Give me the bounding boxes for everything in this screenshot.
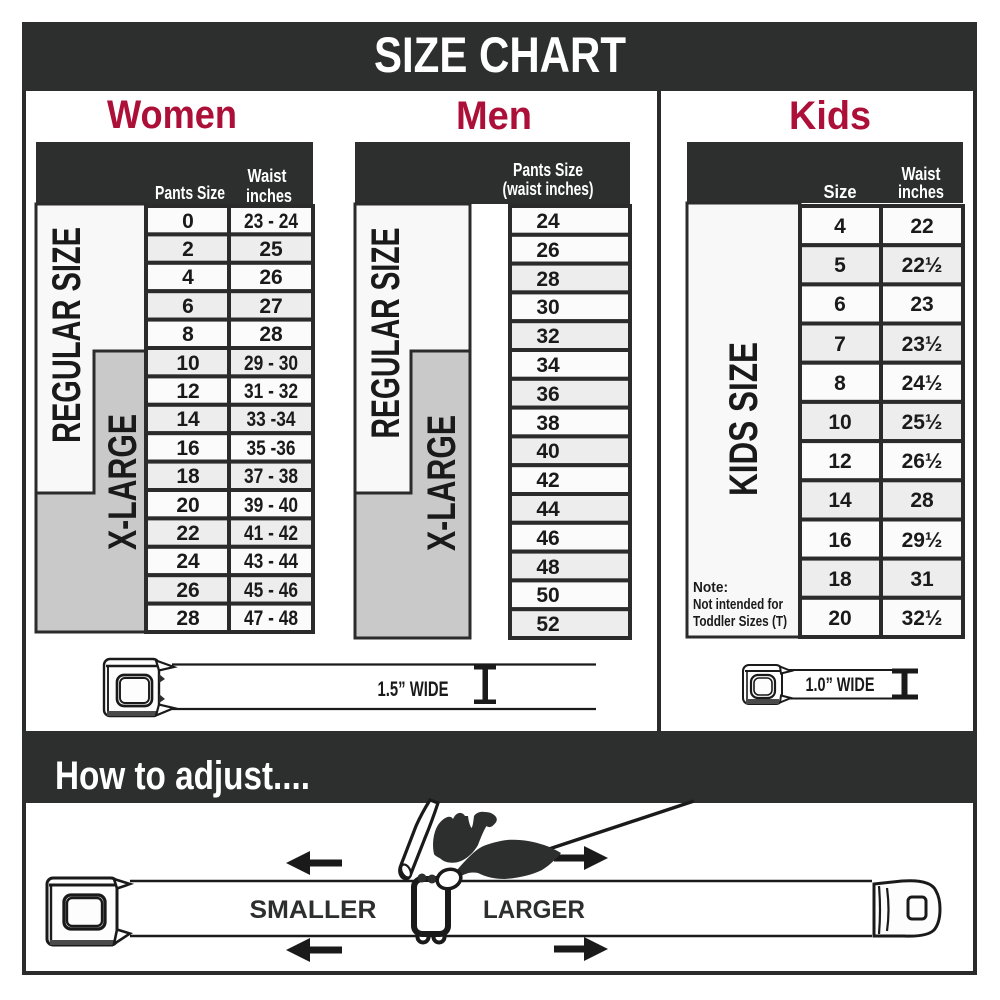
svg-text:SIZE CHART: SIZE CHART [374, 27, 626, 83]
svg-text:10: 10 [828, 411, 851, 434]
svg-text:22½: 22½ [902, 254, 943, 277]
svg-text:(waist inches): (waist inches) [503, 179, 594, 199]
svg-text:1.0” WIDE: 1.0” WIDE [806, 675, 875, 696]
svg-text:47 - 48: 47 - 48 [244, 607, 298, 630]
svg-text:43 - 44: 43 - 44 [244, 550, 298, 573]
svg-text:52: 52 [536, 613, 559, 636]
svg-text:X-LARGE: X-LARGE [420, 415, 464, 551]
svg-text:14: 14 [828, 489, 852, 512]
svg-text:26: 26 [176, 579, 199, 602]
svg-text:REGULAR SIZE: REGULAR SIZE [45, 227, 89, 443]
svg-text:4: 4 [834, 215, 846, 238]
svg-text:Waist: Waist [902, 164, 941, 184]
svg-text:23: 23 [910, 293, 933, 316]
svg-text:39 - 40: 39 - 40 [244, 494, 298, 517]
svg-text:inches: inches [898, 182, 944, 202]
svg-text:X-LARGE: X-LARGE [101, 414, 145, 550]
svg-text:Not intended for: Not intended for [693, 596, 783, 613]
svg-text:26: 26 [536, 239, 559, 262]
svg-text:0: 0 [182, 210, 194, 233]
svg-text:LARGER: LARGER [483, 896, 585, 924]
svg-text:16: 16 [828, 529, 851, 552]
svg-text:36: 36 [536, 383, 559, 406]
svg-text:8: 8 [182, 323, 194, 346]
svg-text:31: 31 [910, 568, 934, 591]
svg-text:Waist: Waist [248, 166, 287, 186]
svg-text:32½: 32½ [902, 607, 943, 630]
svg-text:5: 5 [834, 254, 846, 277]
svg-text:50: 50 [536, 584, 559, 607]
svg-text:24½: 24½ [902, 372, 943, 395]
svg-text:20: 20 [828, 607, 851, 630]
svg-text:34: 34 [536, 354, 560, 377]
svg-text:4: 4 [182, 266, 194, 289]
svg-text:KIDS SIZE: KIDS SIZE [722, 342, 766, 496]
svg-text:8: 8 [834, 372, 846, 395]
svg-text:Toddler Sizes (T): Toddler Sizes (T) [693, 613, 787, 630]
svg-text:16: 16 [176, 437, 199, 460]
svg-text:44: 44 [536, 498, 560, 521]
svg-text:30: 30 [536, 296, 559, 319]
svg-text:Women: Women [107, 93, 237, 137]
svg-text:1.5” WIDE: 1.5” WIDE [378, 678, 449, 701]
svg-text:25: 25 [259, 238, 283, 261]
svg-text:12: 12 [828, 450, 851, 473]
svg-text:inches: inches [246, 186, 292, 206]
svg-text:18: 18 [176, 465, 200, 488]
svg-text:18: 18 [828, 568, 852, 591]
svg-text:42: 42 [536, 469, 559, 492]
svg-text:Kids: Kids [789, 94, 871, 138]
svg-text:Size: Size [824, 182, 857, 202]
svg-text:20: 20 [176, 494, 199, 517]
svg-text:6: 6 [182, 295, 194, 318]
svg-text:How to adjust....: How to adjust.... [55, 754, 310, 798]
svg-text:22: 22 [176, 522, 199, 545]
svg-text:24: 24 [176, 550, 200, 573]
svg-text:26: 26 [259, 266, 282, 289]
svg-text:Note:: Note: [693, 579, 728, 596]
svg-text:32: 32 [536, 325, 559, 348]
svg-text:28: 28 [536, 268, 560, 291]
svg-text:29½: 29½ [902, 529, 943, 552]
svg-text:2: 2 [182, 238, 194, 261]
svg-text:6: 6 [834, 293, 846, 316]
svg-text:24: 24 [536, 210, 560, 233]
svg-text:14: 14 [176, 408, 200, 431]
svg-text:38: 38 [536, 412, 560, 435]
svg-text:46: 46 [536, 527, 559, 550]
svg-text:25½: 25½ [902, 411, 943, 434]
svg-text:Pants Size: Pants Size [513, 160, 583, 180]
svg-text:Men: Men [456, 94, 532, 138]
svg-text:37 - 38: 37 - 38 [244, 465, 298, 488]
svg-text:26½: 26½ [902, 450, 943, 473]
svg-text:SMALLER: SMALLER [250, 896, 377, 924]
svg-text:Pants Size: Pants Size [155, 183, 225, 203]
svg-text:7: 7 [834, 333, 846, 356]
svg-text:40: 40 [536, 440, 559, 463]
svg-text:29 - 30: 29 - 30 [244, 352, 298, 375]
svg-text:28: 28 [176, 607, 200, 630]
svg-text:23 - 24: 23 - 24 [244, 210, 298, 233]
svg-text:12: 12 [176, 380, 199, 403]
svg-text:28: 28 [259, 323, 283, 346]
svg-text:48: 48 [536, 556, 560, 579]
svg-text:45 - 46: 45 - 46 [244, 579, 298, 602]
svg-text:31 - 32: 31 - 32 [244, 380, 298, 403]
svg-text:22: 22 [910, 215, 933, 238]
svg-text:27: 27 [259, 295, 282, 318]
svg-text:33 -34: 33 -34 [247, 408, 296, 431]
svg-text:23½: 23½ [902, 333, 943, 356]
svg-text:28: 28 [910, 489, 934, 512]
svg-text:35 -36: 35 -36 [247, 437, 296, 460]
svg-text:10: 10 [176, 352, 199, 375]
svg-text:41 - 42: 41 - 42 [244, 522, 298, 545]
svg-text:REGULAR SIZE: REGULAR SIZE [364, 228, 408, 439]
